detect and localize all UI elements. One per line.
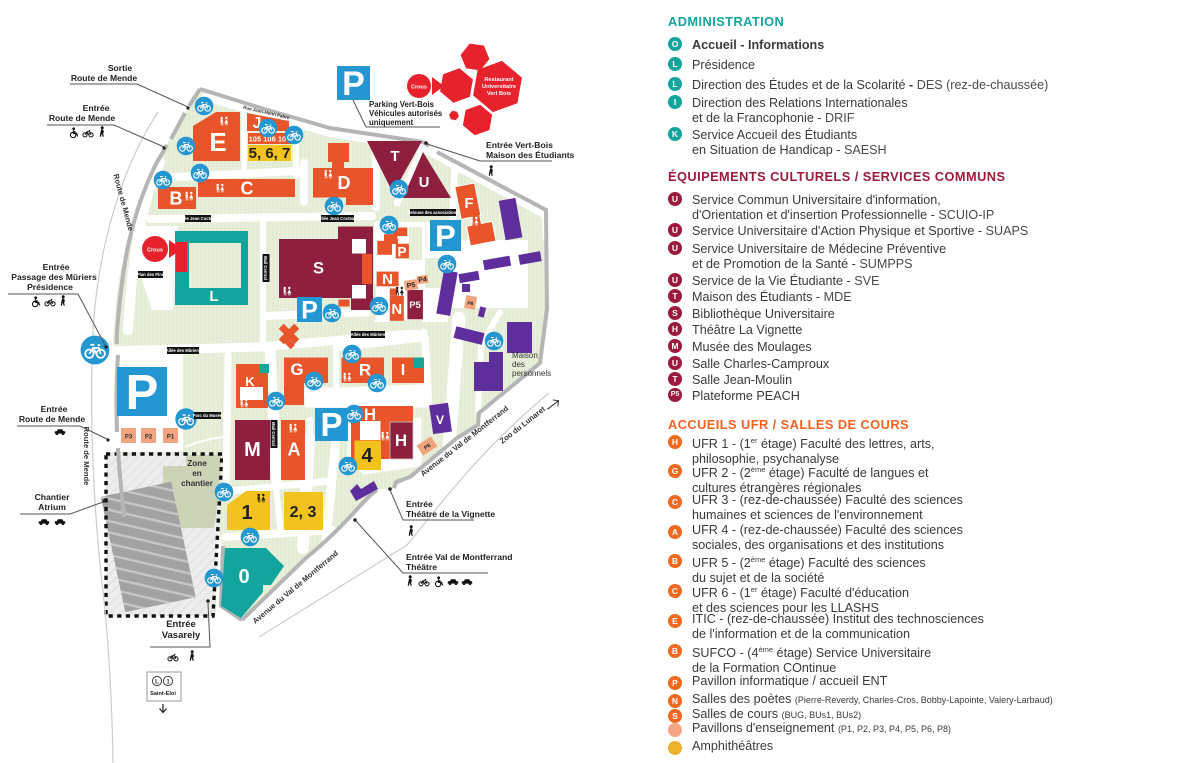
svg-text:N: N [391,301,402,318]
svg-text:Crous: Crous [411,85,427,91]
svg-text:P: P [397,245,406,260]
svg-text:des: des [512,360,525,369]
svg-text:Sortie: Sortie [108,63,133,73]
svg-text:L: L [155,679,159,686]
svg-text:I: I [401,362,405,379]
svg-text:Entrée Val de Montferrand: Entrée Val de Montferrand [406,552,513,562]
svg-text:A: A [288,440,301,460]
svg-text:uniquement: uniquement [369,118,414,127]
svg-text:P1: P1 [167,435,175,441]
svg-text:Saint-Eloi: Saint-Eloi [150,691,176,697]
svg-text:Crous: Crous [147,248,163,254]
svg-text:Théâtre de la Vignette: Théâtre de la Vignette [406,509,495,519]
svg-text:T: T [390,148,399,165]
svg-text:Entrée Vert-Bois: Entrée Vert-Bois [486,140,553,150]
svg-text:Restaurant: Restaurant [484,77,513,83]
svg-text:U: U [419,174,430,191]
svg-text:personnels: personnels [512,369,551,378]
svg-text:Vasarely: Vasarely [162,630,201,641]
svg-text:0: 0 [238,566,249,588]
svg-text:Route de Mende: Route de Mende [82,427,91,486]
svg-text:Route de Mende: Route de Mende [49,113,116,123]
svg-text:Allée des Mûriers: Allée des Mûriers [166,348,201,353]
svg-text:Parc du Musée: Parc du Musée [193,413,223,418]
svg-text:1: 1 [166,679,170,686]
svg-text:P: P [301,297,318,325]
svg-text:4: 4 [361,445,373,467]
svg-text:H: H [395,431,407,450]
svg-text:Allée Jean Cocteau: Allée Jean Cocteau [318,216,357,221]
svg-text:Atrium: Atrium [38,502,66,512]
svg-text:G: G [290,360,303,379]
svg-text:Chantier: Chantier [35,492,71,502]
svg-text:Allée Jean Cocteau: Allée Jean Cocteau [179,216,218,221]
svg-text:en: en [192,469,202,478]
svg-text:Passage des Mûriers: Passage des Mûriers [11,272,97,282]
svg-text:P: P [342,65,365,103]
svg-text:Mail Central: Mail Central [263,256,268,280]
svg-text:L: L [209,288,218,305]
svg-text:2, 3: 2, 3 [290,504,317,521]
svg-text:K: K [245,374,255,389]
svg-text:P2: P2 [145,435,153,441]
svg-text:P4: P4 [418,276,428,284]
svg-text:Zone: Zone [187,459,207,468]
svg-text:R: R [359,361,371,380]
svg-text:Entrée: Entrée [166,619,196,630]
svg-text:N: N [382,271,393,288]
svg-text:Plan des Pins: Plan des Pins [137,272,165,277]
svg-text:chantier: chantier [181,479,214,488]
svg-text:D: D [338,173,351,193]
svg-text:P5: P5 [409,300,421,311]
svg-text:Entrée: Entrée [406,499,433,509]
svg-text:Entrée: Entrée [43,262,70,272]
svg-text:Théâtre: Théâtre [406,562,437,572]
svg-text:P: P [435,219,456,254]
svg-text:5, 6, 7: 5, 6, 7 [249,145,291,162]
svg-text:1: 1 [241,502,252,524]
svg-text:S: S [313,260,324,278]
svg-text:Entrée: Entrée [83,103,110,113]
svg-text:F: F [464,195,473,212]
svg-text:Allée des Mûriers: Allée des Mûriers [351,332,386,337]
svg-text:Route de Mende: Route de Mende [19,414,86,424]
svg-text:Route de Mende: Route de Mende [111,173,135,232]
svg-text:C: C [241,179,254,199]
svg-text:Maison: Maison [512,351,538,360]
svg-text:Universitaire: Universitaire [482,84,516,90]
svg-text:P: P [126,366,159,420]
svg-text:P: P [320,406,342,443]
svg-text:P3: P3 [125,435,133,441]
svg-text:Pelouse des associations: Pelouse des associations [408,210,460,215]
svg-text:Route de Mende: Route de Mende [71,73,138,83]
svg-text:Entrée: Entrée [41,404,68,414]
svg-text:M: M [244,439,261,461]
svg-text:Maison des Étudiants: Maison des Étudiants [486,150,575,160]
svg-text:P5: P5 [406,282,416,290]
svg-text:Vert Bois: Vert Bois [487,91,511,97]
svg-text:B: B [170,189,183,209]
svg-text:Parking Vert-Bois: Parking Vert-Bois [369,100,435,109]
svg-text:Véhicules autorisés: Véhicules autorisés [369,109,443,118]
svg-text:Présidence: Présidence [27,282,73,292]
svg-text:Mail Central: Mail Central [271,422,276,446]
svg-text:E: E [209,127,226,157]
svg-text:V: V [436,413,444,427]
